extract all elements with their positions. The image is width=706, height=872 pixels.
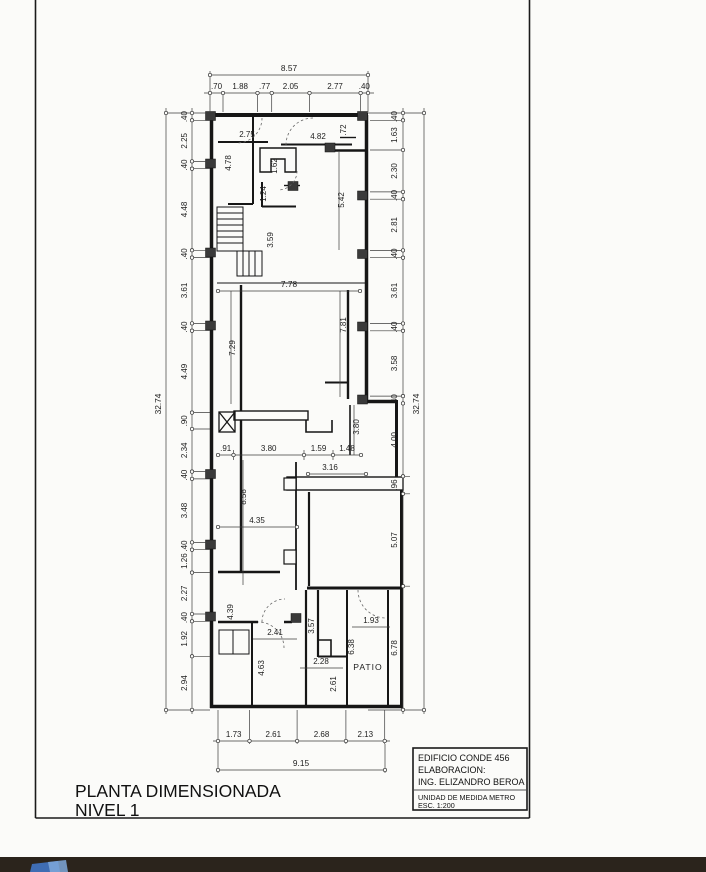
dim-top-seg: .40 [359, 82, 371, 91]
dim-left-seg: .40 [180, 469, 189, 481]
dim-left-seg: 4.49 [180, 363, 189, 379]
dim-right-seg: .40 [390, 394, 399, 406]
dim-left-seg: .40 [180, 159, 189, 171]
dim-left-seg: 1.26 [180, 553, 189, 569]
dim-interior: 4.78 [224, 155, 233, 171]
dim-top-seg: .70 [211, 82, 223, 91]
dim-top-overall: 8.57 [281, 63, 298, 73]
dim-top-seg: 1.88 [232, 82, 248, 91]
dim-right-seg: 3.58 [390, 355, 399, 371]
title-block-elaboration: ELABORACION: [418, 765, 486, 775]
dim-interior: 2.28 [313, 657, 329, 666]
dim-right-seg: 4.00 [390, 431, 399, 447]
title-block: EDIFICIO CONDE 456 ELABORACION: ING. ELI… [413, 748, 527, 810]
dim-bottom-seg: 1.73 [226, 730, 242, 739]
dim-interior: 2.41 [267, 628, 283, 637]
dim-interior: 1.93 [363, 616, 379, 625]
dim-left-seg: .40 [180, 540, 189, 552]
dim-left-seg: 2.25 [180, 132, 189, 148]
dim-right-seg: 2.30 [390, 163, 399, 179]
dim-interior: 2.61 [329, 676, 338, 692]
dim-left-seg: 2.94 [180, 675, 189, 691]
dim-right-seg: .40 [390, 189, 399, 201]
dim-left-seg: 3.48 [180, 502, 189, 518]
dim-interior: 7.78 [281, 279, 298, 289]
dim-left-overall: 32.74 [153, 393, 163, 414]
dim-left-seg: 4.48 [180, 201, 189, 217]
title-block-scale: ESC. 1:200 [418, 801, 455, 810]
taskbar-background [0, 857, 706, 872]
dim-left-seg: .90 [180, 415, 189, 427]
dim-interior: 5.42 [337, 192, 346, 208]
drawing-title-line1: PLANTA DIMENSIONADA [75, 781, 281, 801]
dim-interior: 1.62 [270, 158, 279, 174]
dim-top-seg: 2.77 [327, 82, 343, 91]
dim-interior: 3.80 [352, 419, 361, 435]
sheet-frame [36, 0, 530, 818]
dim-bottom-overall: 9.15 [293, 758, 310, 768]
dim-bottom-seg: 2.61 [266, 730, 282, 739]
taskbar[interactable] [0, 857, 706, 872]
title-block-engineer: ING. ELIZANDRO BEROA [418, 777, 525, 787]
dim-interior: 6.38 [347, 639, 356, 655]
shaft-x-symbol [219, 412, 235, 432]
dim-interior: 3.59 [266, 232, 275, 248]
dim-left-seg: .40 [180, 110, 189, 122]
dimension-ticks [164, 73, 425, 771]
dim-left-seg: .40 [180, 611, 189, 623]
dim-bottom-seg: 2.13 [358, 730, 374, 739]
dim-right-overall: 32.74 [411, 393, 421, 414]
dim-interior: 3.57 [307, 618, 316, 634]
dim-bottom-seg: 2.68 [314, 730, 330, 739]
dim-right-seg: .40 [390, 110, 399, 122]
floor-plan-sheet: 8.57 .70 1.88 .77 2.05 2.77 .40 32.74 .4… [0, 0, 706, 872]
dim-right-seg: 2.81 [390, 216, 399, 232]
dim-interior: 1.48 [339, 444, 355, 453]
dimension-lines [166, 71, 424, 773]
dim-right-seg: .96 [390, 479, 399, 491]
dim-interior: 8.58 [239, 489, 248, 505]
drawing-title-line2: NIVEL 1 [75, 800, 140, 820]
scanned-drawing-page: 8.57 .70 1.88 .77 2.05 2.77 .40 32.74 .4… [0, 0, 706, 872]
dim-interior: 4.82 [310, 132, 326, 141]
dim-left-seg: 2.34 [180, 442, 189, 458]
dim-interior: 2.75 [239, 130, 255, 139]
dim-interior: 4.39 [226, 604, 235, 620]
title-block-building: EDIFICIO CONDE 456 [418, 753, 510, 763]
drawing-title: PLANTA DIMENSIONADA NIVEL 1 [75, 781, 281, 820]
dim-left-seg: 1.92 [180, 630, 189, 646]
dim-interior: 3.80 [261, 444, 277, 453]
dim-interior: 7.81 [339, 317, 348, 333]
dim-interior: 4.63 [257, 660, 266, 676]
dim-left-seg: .40 [180, 321, 189, 333]
dim-left-seg: 2.27 [180, 585, 189, 601]
room-label-patio: PATIO [353, 662, 383, 672]
dim-interior: 3.16 [322, 463, 338, 472]
taskbar-logo-icon-highlight [48, 860, 68, 872]
dim-interior: 7.29 [228, 340, 237, 356]
dim-interior: .91 [220, 444, 232, 453]
dim-interior: 1.24 [259, 186, 268, 202]
dim-left-seg: .40 [180, 248, 189, 260]
dim-right-seg: 5.07 [390, 532, 399, 548]
dim-right-seg: 3.61 [390, 282, 399, 298]
dim-right-seg: 6.78 [390, 640, 399, 656]
dim-left-seg: 3.61 [180, 282, 189, 298]
dim-right-seg: .40 [390, 321, 399, 333]
dim-interior: 1.59 [311, 444, 327, 453]
dim-right-seg: .40 [390, 248, 399, 260]
dim-interior: 4.35 [249, 516, 265, 525]
dim-interior: .72 [339, 124, 348, 136]
staircase [217, 207, 262, 276]
dim-top-seg: 2.05 [283, 82, 299, 91]
dim-right-seg: 1.63 [390, 127, 399, 143]
dim-top-seg: .77 [259, 82, 271, 91]
